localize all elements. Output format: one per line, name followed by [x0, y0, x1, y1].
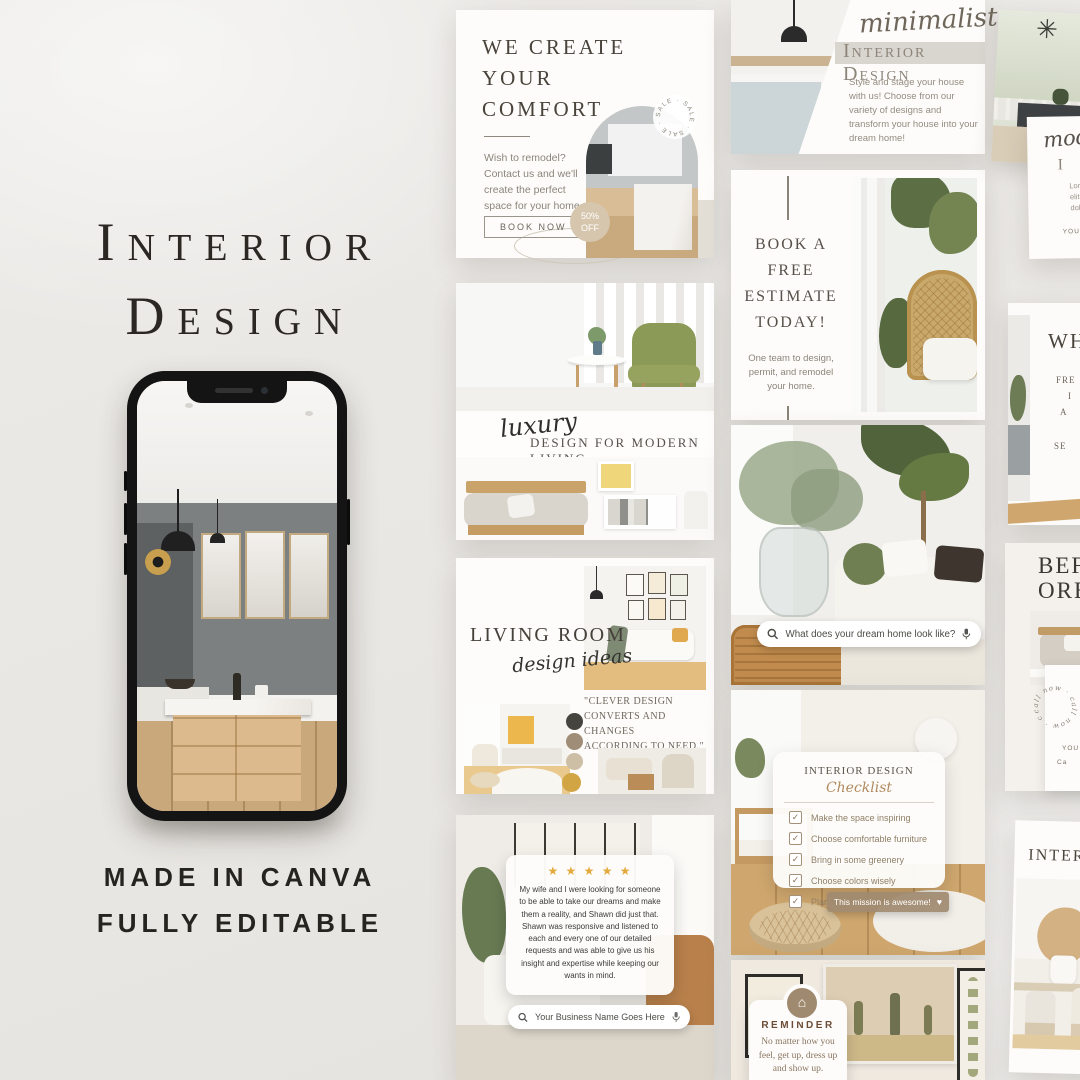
- product-title: Interior Design: [40, 205, 440, 353]
- checklist-heading: INTERIOR DESIGN: [804, 765, 913, 777]
- frame-floral-right: [957, 968, 985, 1080]
- floral-vine: [968, 977, 978, 1077]
- modern-body: Lorem ipsum elit, sed do e dolore magn: [1036, 179, 1080, 214]
- wh-line4: SE: [1054, 441, 1067, 451]
- mini-pendant-cord: [793, 0, 795, 28]
- modern-heading: I: [1057, 156, 1065, 174]
- patio-plant-pot: [1052, 88, 1069, 105]
- product-title-line2: Design: [40, 279, 440, 353]
- pendant-lamp2-icon: [210, 533, 225, 543]
- reminder-b1: No matter how you: [749, 1036, 847, 1050]
- phone-notch: [187, 381, 287, 403]
- fifty-off-badge: 50% OFF: [570, 202, 610, 242]
- palette-dot-dark: [566, 713, 583, 730]
- search-icon: [518, 1012, 528, 1023]
- pendant-cord1: [177, 489, 179, 533]
- phone-screen: [137, 381, 337, 811]
- pouf-small: [470, 772, 500, 788]
- template-card-living-room: LIVING ROOM design ideas "CLEVER DESIGN …: [456, 558, 714, 794]
- product-title-line1: Interior: [40, 205, 440, 279]
- glass-vase: [759, 527, 829, 617]
- gallery-frame-4: [628, 600, 644, 620]
- template-card-estimate: BOOK A FREE ESTIMATE TODAY! One team to …: [731, 170, 985, 420]
- checklist-row-4: ✓ Choose colors wisely: [789, 874, 945, 887]
- notch-speaker: [215, 388, 253, 393]
- kitchen-ceiling-light1: [185, 403, 193, 408]
- template-card-modern-partial: mod I Lorem ipsum elit, sed do e dolore …: [1027, 115, 1080, 259]
- before-line1: BEF: [1038, 553, 1080, 578]
- checklist-divider: [784, 802, 934, 803]
- checkbox-icon[interactable]: ✓: [789, 874, 802, 887]
- before-pillows: [1064, 635, 1080, 651]
- reminder-panel: ⌂ REMINDER No matter how you feel, get u…: [749, 1000, 847, 1080]
- before-heading: BEF ORE: [1038, 553, 1080, 603]
- business-name-search-pill[interactable]: Your Business Name Goes Here: [508, 1005, 690, 1029]
- dream-search-query: What does your dream home look like?: [785, 629, 955, 640]
- showcase-canvas: Interior Design: [0, 0, 1080, 1080]
- checkbox-icon[interactable]: ✓: [789, 895, 802, 908]
- palette-dot-taupe: [566, 733, 583, 750]
- checklist-item-label: Bring in some greenery: [811, 855, 904, 865]
- luxury-bottom-image: [456, 457, 714, 540]
- living-bottom-left-image: [464, 704, 570, 794]
- template-card-wh-partial: WH FRE I A SE: [1008, 303, 1080, 525]
- wall-art-frame1: [201, 533, 241, 619]
- before-sofa-frame: [1038, 627, 1080, 635]
- gallery-frame-3: [670, 574, 688, 596]
- checkbox-icon[interactable]: ✓: [789, 811, 802, 824]
- house-icon: ⌂: [798, 994, 806, 1010]
- gallery-frame-2: [648, 572, 666, 594]
- gallery-frame-6: [670, 600, 686, 620]
- template-card-reminder: ⌂ REMINDER No matter how you feel, get u…: [731, 960, 985, 1080]
- sale-circle-badge: SALE · SALE · SALE · SALE ·: [652, 94, 698, 140]
- gallery-frame-5: [648, 598, 666, 620]
- wh-line1: FRE: [1056, 375, 1076, 385]
- mission-button[interactable]: This mission is awesome! ♥: [827, 892, 949, 912]
- phone-button-volume3: [124, 543, 127, 575]
- vase: [593, 341, 602, 355]
- mini-shelf-wood: [731, 56, 841, 66]
- pendant-cord2: [217, 499, 218, 535]
- vline-bottom: [787, 406, 789, 420]
- estimate-heading: BOOK A FREE ESTIMATE TODAY!: [735, 232, 847, 336]
- we-create-h1: WE CREATE: [482, 32, 626, 63]
- checklist-row-1: ✓ Make the space inspiring: [789, 811, 945, 824]
- living-quote: "CLEVER DESIGN CONVERTS AND CHANGES ACCO…: [584, 694, 708, 754]
- island-body: [173, 715, 301, 801]
- phone-button-volume1: [124, 471, 127, 491]
- wh-line3: A: [1060, 407, 1067, 417]
- cactus-1: [854, 1001, 863, 1035]
- before-footer1: YOU: [1062, 745, 1079, 752]
- modern-b3: dolore magn: [1036, 201, 1080, 214]
- armchair-seat: [628, 365, 700, 383]
- wall-art-frame2: [245, 531, 285, 619]
- checklist-item-label: Choose comfortable furniture: [811, 834, 927, 844]
- notch-camera-icon: [261, 387, 268, 394]
- reminder-badge: ⌂: [783, 984, 821, 1022]
- we-create-heading: WE CREATE YOUR COMFORT: [482, 32, 626, 125]
- template-card-before: BEF ORE call now · call now · call now ·…: [1005, 543, 1080, 791]
- estimate-h1: BOOK A: [735, 232, 847, 258]
- checkbox-icon[interactable]: ✓: [789, 832, 802, 845]
- estimate-body: One team to design, permit, and remodel …: [743, 352, 839, 394]
- template-card-we-create: WE CREATE YOUR COMFORT Wish to remodel? …: [456, 10, 714, 258]
- checklist-item-label: Choose colors wisely: [811, 876, 896, 886]
- sideboard-squares: [608, 499, 648, 525]
- white-pillow-dream: [881, 539, 928, 577]
- wood-table-r: [628, 774, 654, 790]
- template-card-checklist: INTERIOR DESIGN Checklist ✓ Make the spa…: [731, 690, 985, 955]
- made-in-canva-label: MADE IN CANVA: [40, 862, 440, 893]
- white-rug-arc: [492, 768, 562, 794]
- pendant-small-shade: [590, 590, 603, 599]
- pampas-vase: [1050, 955, 1077, 986]
- island-cup: [255, 685, 268, 699]
- wh-line2: I: [1068, 391, 1071, 401]
- we-create-h2: YOUR: [482, 63, 626, 94]
- vline-top: [787, 176, 789, 220]
- luxury-floor: [456, 387, 714, 411]
- checklist-item-label: Make the space inspiring: [811, 813, 911, 823]
- pendant-small: [596, 566, 597, 592]
- mic-icon: [962, 628, 971, 640]
- pouf-texture: [759, 910, 831, 944]
- yellow-art-block: [508, 716, 534, 744]
- island-bottle: [233, 673, 241, 700]
- eucalyptus-blob-2: [791, 469, 863, 531]
- modern-b1: Lorem ipsum: [1036, 179, 1080, 192]
- template-card-review: ★ ★ ★ ★ ★ My wife and I were looking for…: [456, 815, 714, 1080]
- media-unit: [502, 748, 562, 764]
- palette-dot-gold: [562, 773, 581, 792]
- mini-pendant-shade: [781, 26, 807, 42]
- dining-floor: [1012, 1034, 1080, 1052]
- off-percent: 50%: [570, 210, 610, 222]
- cactus-3: [924, 1005, 932, 1035]
- modern-footer: YOU: [1063, 228, 1080, 235]
- phone-button-power: [347, 499, 350, 545]
- green-round-pillow: [843, 543, 887, 585]
- minimalist-body: Style and stage your house with us! Choo…: [849, 76, 981, 146]
- quote-line2: CONVERTS AND CHANGES: [584, 709, 708, 739]
- quote-line1: "CLEVER DESIGN: [584, 694, 708, 709]
- mic-icon: [672, 1011, 680, 1023]
- book-now-button[interactable]: BOOK NOW: [484, 216, 583, 238]
- off-word: OFF: [570, 222, 610, 234]
- reminder-b3: and show up.: [749, 1063, 847, 1077]
- fully-editable-label: FULLY EDITABLE: [40, 908, 440, 939]
- checklist-panel: INTERIOR DESIGN Checklist ✓ Make the spa…: [773, 752, 945, 888]
- island-top-marble: [165, 699, 311, 715]
- template-card-luxury: luxury DESIGN FOR MODERN LIVING: [456, 283, 714, 540]
- dream-search-pill[interactable]: What does your dream home look like?: [757, 621, 981, 647]
- luxury-band: luxury DESIGN FOR MODERN LIVING: [456, 411, 714, 457]
- starburst-decor-icon: ✳: [1035, 13, 1058, 45]
- sofa-base: [468, 525, 584, 535]
- modern-script: mod: [1042, 124, 1080, 152]
- estimate-image: [851, 178, 977, 412]
- sofa-pillow-white: [507, 493, 536, 518]
- business-name-query: Your Business Name Goes Here: [535, 1012, 665, 1022]
- review-body: My wife and I were looking for someone t…: [516, 884, 664, 982]
- wall-clock-icon: [145, 549, 171, 575]
- checklist-script: Checklist: [826, 780, 892, 796]
- template-card-interior-partial: INTERIOR: [1009, 820, 1080, 1076]
- curtain-white: [851, 178, 885, 412]
- beige-armchair-r: [662, 754, 694, 788]
- plant-leaves-2: [929, 192, 977, 254]
- checklist-row-3: ✓ Bring in some greenery: [789, 853, 945, 866]
- estimate-h2: FREE: [735, 258, 847, 284]
- living-room-heading: LIVING ROOM: [470, 624, 626, 647]
- window-plant: [735, 738, 765, 778]
- luxury-top-image: [456, 283, 714, 411]
- sliver-cabinet: [1008, 425, 1030, 475]
- estimate-h3: ESTIMATE: [735, 284, 847, 310]
- cactus-2: [890, 993, 900, 1037]
- phone-mockup: [127, 371, 347, 821]
- dining-chair: [684, 491, 708, 529]
- checkbox-icon[interactable]: ✓: [789, 853, 802, 866]
- white-pillow: [923, 338, 977, 380]
- sofa-pillow-yellow: [672, 628, 688, 642]
- kitchen-ceiling-light3: [305, 411, 313, 416]
- search-icon: [767, 628, 778, 640]
- heart-icon: ♥: [937, 897, 942, 907]
- minimalist-script: minimalist: [858, 2, 998, 39]
- palette-dot-tan: [566, 753, 583, 770]
- yellow-wall-art: [598, 461, 634, 491]
- review-panel: ★ ★ ★ ★ ★ My wife and I were looking for…: [506, 855, 674, 995]
- arch-tv: [586, 144, 612, 174]
- living-bottom-right-image: [598, 748, 706, 794]
- dark-pillow-dream: [934, 545, 985, 583]
- gallery-frame-1: [626, 574, 644, 596]
- review-rug: [456, 1025, 714, 1080]
- before-footer2: Ca: [1057, 759, 1067, 766]
- phone-button-volume2: [124, 503, 127, 535]
- review-plant: [462, 867, 506, 963]
- minimalist-diagonal-image: [731, 0, 861, 154]
- review-stars: ★ ★ ★ ★ ★: [506, 864, 674, 878]
- reminder-b2: feel, get up, dress up: [749, 1050, 847, 1064]
- reminder-body: No matter how you feel, get up, dress up…: [749, 1036, 847, 1077]
- before-line2: ORE: [1038, 578, 1080, 603]
- heading-divider: [484, 136, 530, 137]
- template-card-minimalist: minimalist Interior Design Style and sta…: [731, 0, 985, 154]
- side-table: [568, 355, 626, 365]
- sliver-plant: [1010, 375, 1026, 421]
- wh-heading: WH: [1048, 329, 1080, 354]
- mini-counter-top: [731, 74, 835, 82]
- wall-art-frame3: [289, 533, 329, 619]
- mission-button-label: This mission is awesome!: [834, 897, 931, 907]
- checklist-row-2: ✓ Choose comfortable furniture: [789, 832, 945, 845]
- arch-island: [634, 184, 692, 250]
- mini-counter: [731, 80, 821, 154]
- sofa-wood-frame: [466, 481, 586, 493]
- interior-partial-heading: INTERIOR: [1028, 847, 1080, 867]
- interior-dining-image: [1012, 878, 1080, 1051]
- template-card-dream-search: What does your dream home look like?: [731, 425, 985, 685]
- wh-left-sliver-image: [1008, 315, 1030, 501]
- estimate-h4: TODAY!: [735, 310, 847, 336]
- modern-b2: elit, sed do e: [1036, 190, 1080, 203]
